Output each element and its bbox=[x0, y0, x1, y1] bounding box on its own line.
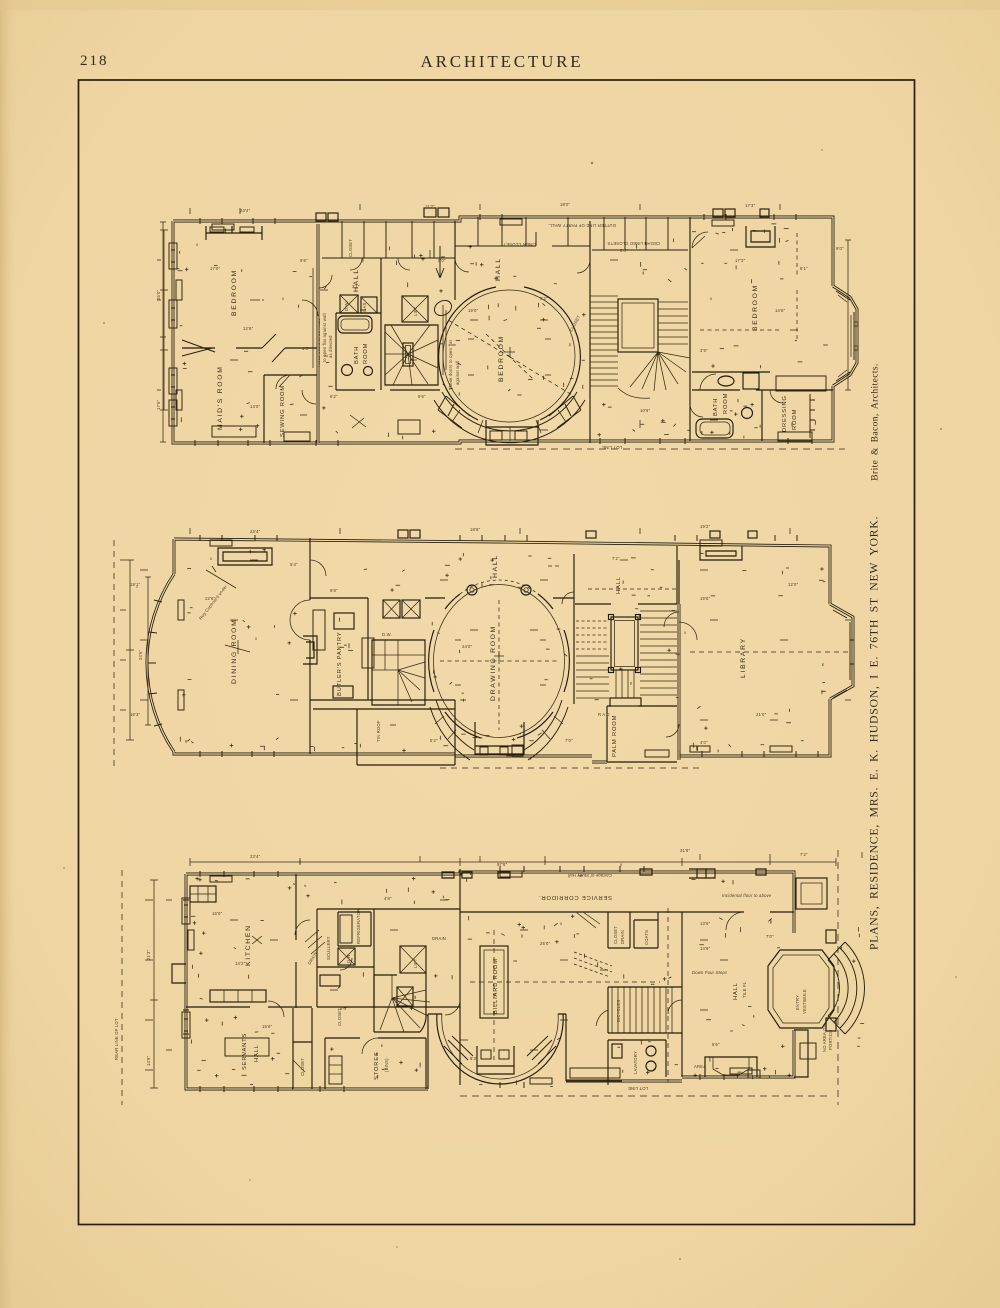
svg-text:8'6": 8'6" bbox=[418, 394, 426, 399]
svg-text:VESTIBULE: VESTIBULE bbox=[802, 989, 807, 1014]
svg-text:AREA: AREA bbox=[694, 1064, 706, 1069]
svg-text:GAS: GAS bbox=[362, 303, 367, 312]
svg-text:3'9": 3'9" bbox=[700, 348, 708, 353]
svg-text:8'4": 8'4" bbox=[620, 248, 628, 253]
svg-text:LINEN CLOSET: LINEN CLOSET bbox=[503, 242, 536, 247]
svg-text:Down Four Steps: Down Four Steps bbox=[692, 970, 728, 975]
svg-text:23'4": 23'4" bbox=[250, 854, 261, 859]
svg-text:218: 218 bbox=[80, 53, 109, 69]
svg-text:DRAIN: DRAIN bbox=[620, 930, 625, 944]
svg-text:5'2": 5'2" bbox=[430, 738, 438, 743]
svg-text:15'6": 15'6" bbox=[262, 1024, 273, 1029]
svg-text:14'6": 14'6" bbox=[775, 308, 786, 313]
svg-text:23'4": 23'4" bbox=[240, 208, 251, 213]
svg-text:9'0": 9'0" bbox=[836, 246, 844, 251]
svg-text:14'2": 14'2" bbox=[235, 961, 246, 966]
svg-text:D.W.: D.W. bbox=[382, 632, 392, 637]
svg-text:D.W.: D.W. bbox=[344, 301, 349, 311]
svg-text:24'6": 24'6" bbox=[138, 649, 143, 660]
svg-text:CLOSET: CLOSET bbox=[348, 239, 353, 257]
svg-text:24'0": 24'0" bbox=[462, 644, 473, 649]
svg-text:ARCHITECTURE: ARCHITECTURE bbox=[421, 52, 584, 71]
svg-text:KITCHEN: KITCHEN bbox=[245, 924, 252, 966]
svg-text:3'1": 3'1" bbox=[352, 284, 360, 289]
svg-text:13'0": 13'0" bbox=[250, 404, 261, 409]
svg-text:14'9": 14'9" bbox=[146, 1055, 151, 1066]
svg-text:to open flat against wall: to open flat against wall bbox=[322, 313, 327, 362]
svg-text:7'2": 7'2" bbox=[800, 852, 808, 857]
svg-text:DINING ROOM: DINING ROOM bbox=[231, 618, 238, 684]
svg-text:17'6": 17'6" bbox=[156, 399, 161, 410]
svg-text:6'2": 6'2" bbox=[330, 394, 338, 399]
svg-text:ENTRY: ENTRY bbox=[795, 995, 800, 1010]
svg-text:MAID'S ROOM: MAID'S ROOM bbox=[217, 365, 224, 430]
svg-text:7'2": 7'2" bbox=[612, 556, 620, 561]
svg-text:4'0": 4'0" bbox=[700, 740, 708, 745]
svg-text:19'1": 19'1" bbox=[130, 582, 141, 587]
svg-text:(BINS): (BINS) bbox=[384, 1058, 389, 1072]
svg-text:ROOM: ROOM bbox=[792, 409, 798, 430]
svg-text:HALL: HALL bbox=[492, 554, 499, 578]
svg-text:Cartage of Study Hall: Cartage of Study Hall bbox=[567, 873, 612, 878]
svg-text:CLOSET: CLOSET bbox=[300, 1058, 305, 1076]
svg-text:21'0": 21'0" bbox=[756, 712, 767, 717]
svg-text:5'0": 5'0" bbox=[438, 258, 446, 263]
svg-text:10'6": 10'6" bbox=[640, 408, 651, 413]
svg-text:BATH: BATH bbox=[713, 398, 719, 416]
svg-text:19'0": 19'0" bbox=[468, 308, 479, 313]
svg-text:17'0": 17'0" bbox=[210, 266, 221, 271]
svg-text:12'0": 12'0" bbox=[788, 582, 799, 587]
svg-text:PLANS, RESIDENCE, MRS. E. K. H: PLANS, RESIDENCE, MRS. E. K. HUDSON, I E… bbox=[867, 516, 881, 950]
svg-text:TILE FL: TILE FL bbox=[742, 981, 747, 998]
svg-text:LAVATORY: LAVATORY bbox=[633, 1051, 638, 1074]
svg-text:SERVICE CORRIDOR.: SERVICE CORRIDOR. bbox=[538, 894, 612, 900]
svg-text:CLOSET: CLOSET bbox=[613, 926, 618, 944]
svg-text:D.W.: D.W. bbox=[346, 953, 351, 963]
svg-text:DRAIN: DRAIN bbox=[432, 936, 446, 941]
svg-text:8'3": 8'3" bbox=[470, 1056, 478, 1061]
svg-text:12'6": 12'6" bbox=[243, 326, 254, 331]
svg-text:26'0": 26'0" bbox=[156, 289, 161, 300]
svg-text:9'2": 9'2" bbox=[540, 296, 548, 301]
svg-text:BEDROOM: BEDROOM bbox=[752, 284, 759, 331]
svg-text:LOT LINE: LOT LINE bbox=[602, 445, 622, 450]
svg-text:GUTTER LINE OF PARTY WALL.: GUTTER LINE OF PARTY WALL. bbox=[548, 223, 616, 228]
svg-text:SEWING ROOM: SEWING ROOM bbox=[280, 385, 286, 437]
svg-text:26'0": 26'0" bbox=[540, 941, 551, 946]
svg-text:4'8": 4'8" bbox=[384, 896, 392, 901]
svg-text:BICYCLES: BICYCLES bbox=[616, 1000, 621, 1022]
svg-text:These doors to open flat: These doors to open flat bbox=[448, 339, 453, 390]
svg-text:19'6": 19'6" bbox=[700, 596, 711, 601]
svg-text:HALL: HALL bbox=[616, 576, 622, 594]
svg-text:16'0": 16'0" bbox=[212, 911, 223, 916]
svg-text:18'6": 18'6" bbox=[470, 527, 481, 532]
svg-text:LIBRARY: LIBRARY bbox=[740, 637, 747, 678]
svg-text:23'4": 23'4" bbox=[250, 529, 261, 534]
svg-text:9'6": 9'6" bbox=[300, 258, 308, 263]
svg-text:REAR LINE OF LOT: REAR LINE OF LOT bbox=[114, 1018, 119, 1060]
svg-text:ROOM: ROOM bbox=[723, 393, 729, 414]
svg-text:REFRIGERATOR: REFRIGERATOR bbox=[356, 909, 361, 944]
svg-text:6'8": 6'8" bbox=[330, 588, 338, 593]
svg-text:31'6": 31'6" bbox=[680, 848, 691, 853]
svg-text:BATH: BATH bbox=[354, 346, 360, 364]
svg-text:PALM ROOM: PALM ROOM bbox=[612, 715, 618, 757]
svg-text:ROOM: ROOM bbox=[363, 343, 369, 364]
svg-text:R A D: R A D bbox=[598, 712, 610, 717]
svg-text:TIN ROOF: TIN ROOF bbox=[376, 720, 381, 742]
svg-text:17'3": 17'3" bbox=[735, 258, 746, 263]
svg-text:4'6": 4'6" bbox=[302, 346, 310, 351]
svg-text:7'0": 7'0" bbox=[565, 738, 573, 743]
svg-text:NO AREA ON: NO AREA ON bbox=[822, 1024, 827, 1052]
svg-text:6'1": 6'1" bbox=[800, 266, 808, 271]
svg-text:HALL: HALL bbox=[254, 1044, 260, 1062]
svg-text:5'4": 5'4" bbox=[290, 562, 298, 567]
svg-text:Brite & Bacon, Architects.: Brite & Bacon, Architects. bbox=[871, 363, 881, 480]
svg-text:against wall: against wall bbox=[455, 361, 460, 385]
svg-text:13'6": 13'6" bbox=[700, 921, 711, 926]
svg-text:11'2": 11'2" bbox=[425, 204, 435, 209]
svg-text:SCULLERY: SCULLERY bbox=[326, 936, 331, 960]
svg-text:21'3": 21'3" bbox=[146, 949, 151, 960]
svg-text:as directed: as directed bbox=[328, 335, 333, 358]
svg-text:DRESSING: DRESSING bbox=[782, 395, 788, 432]
svg-text:DRAWING ROOM: DRAWING ROOM bbox=[490, 625, 497, 701]
svg-text:16'3": 16'3" bbox=[130, 712, 141, 717]
svg-text:HALL: HALL bbox=[733, 982, 739, 1000]
svg-text:19'2": 19'2" bbox=[700, 524, 711, 529]
svg-text:97'6": 97'6" bbox=[497, 862, 508, 867]
svg-text:17'3": 17'3" bbox=[745, 203, 756, 208]
svg-text:7'0": 7'0" bbox=[766, 934, 774, 939]
svg-text:COATS: COATS bbox=[644, 930, 649, 945]
svg-text:5'6": 5'6" bbox=[712, 1042, 720, 1047]
svg-text:PORTICO: PORTICO bbox=[828, 1029, 833, 1050]
svg-text:LOT LINE: LOT LINE bbox=[628, 1086, 648, 1091]
svg-text:14'6": 14'6" bbox=[700, 946, 711, 951]
svg-text:CEDAR LINED CLOSETS: CEDAR LINED CLOSETS bbox=[607, 241, 660, 246]
svg-text:6'0": 6'0" bbox=[340, 1006, 348, 1011]
svg-text:Incidental floor to above: Incidental floor to above bbox=[722, 893, 772, 898]
svg-text:18'0": 18'0" bbox=[560, 202, 571, 207]
svg-text:BEDROOM: BEDROOM bbox=[231, 269, 238, 316]
svg-text:LIFT: LIFT bbox=[413, 958, 418, 968]
svg-text:LIFT: LIFT bbox=[413, 306, 418, 316]
svg-text:BEDROOM: BEDROOM bbox=[498, 335, 505, 382]
